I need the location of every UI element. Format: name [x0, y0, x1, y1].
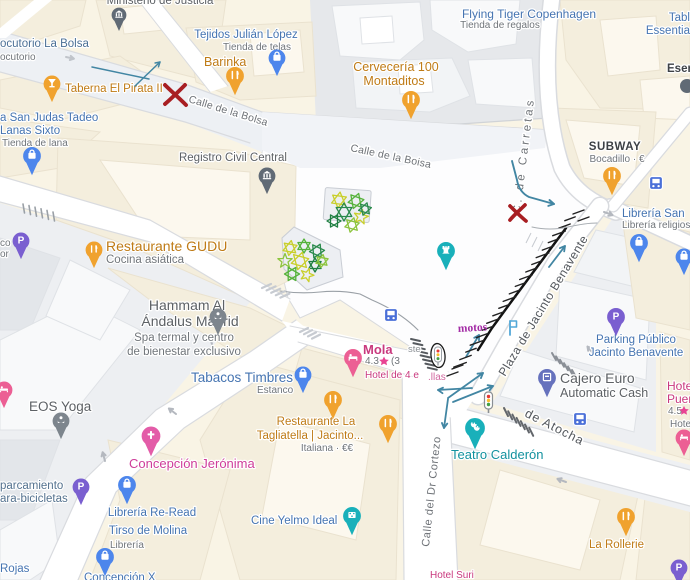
svg-text:Tabl: Tabl: [669, 12, 690, 24]
svg-text:Tejidos Julián López: Tejidos Julián López: [194, 29, 298, 41]
svg-text:Flying Tiger Copenhagen: Flying Tiger Copenhagen: [462, 7, 596, 21]
svg-text:Mola: Mola: [363, 342, 393, 357]
svg-text:P: P: [78, 482, 85, 493]
svg-text:Cervecería 100: Cervecería 100: [353, 60, 439, 74]
svg-text:Montaditos: Montaditos: [363, 74, 424, 88]
svg-text:(3: (3: [391, 356, 400, 367]
svg-text:Jacinto Benavente: Jacinto Benavente: [589, 347, 684, 359]
svg-text:Librería: Librería: [110, 540, 144, 551]
svg-text:de bienestar exclusivo: de bienestar exclusivo: [127, 346, 241, 358]
svg-text:Cine Yelmo Ideal: Cine Yelmo Ideal: [251, 515, 337, 527]
svg-text:or: or: [0, 249, 10, 260]
svg-text:4.3: 4.3: [365, 356, 379, 367]
svg-text:La Rollerie: La Rollerie: [589, 539, 644, 551]
svg-text:Estanco: Estanco: [257, 385, 294, 396]
svg-text:Concepción X: Concepción X: [84, 572, 156, 580]
svg-text:P: P: [18, 236, 25, 247]
svg-text:Hotel: Hotel: [667, 379, 690, 393]
svg-text:Tienda de lana: Tienda de lana: [2, 138, 68, 149]
svg-text:ocutorio La Bolsa: ocutorio La Bolsa: [0, 38, 89, 50]
svg-text:Bocadillo · €: Bocadillo · €: [589, 154, 644, 165]
svg-text:4.5: 4.5: [668, 406, 682, 417]
svg-text:Hotel: Hotel: [670, 419, 690, 430]
svg-text:co: co: [0, 238, 11, 249]
svg-text:Tabacos Timbres: Tabacos Timbres: [191, 370, 293, 385]
svg-text:motos: motos: [458, 321, 488, 335]
svg-text:Concepción Jerónima: Concepción Jerónima: [129, 456, 256, 471]
svg-text:Essentia: Essentia: [646, 25, 690, 37]
svg-text:Ministerio de Justicia: Ministerio de Justicia: [107, 0, 214, 7]
svg-text:Lanas Sixto: Lanas Sixto: [0, 125, 60, 137]
svg-text:Hotel Suri: Hotel Suri: [430, 570, 474, 580]
svg-text:P: P: [613, 312, 620, 323]
svg-text:Tagliatella | Jacinto...: Tagliatella | Jacinto...: [257, 430, 364, 442]
svg-text:Cocina asiática: Cocina asiática: [106, 254, 185, 266]
svg-text:Tienda de regalos: Tienda de regalos: [460, 20, 540, 31]
svg-text:Parking Público: Parking Público: [596, 334, 676, 346]
svg-text:Automatic Cash: Automatic Cash: [560, 386, 648, 400]
svg-text:Italiana · €€: Italiana · €€: [301, 443, 354, 454]
svg-text:Librería San: Librería San: [622, 208, 685, 220]
svg-text:a San Judas Tadeo: a San Judas Tadeo: [0, 112, 98, 124]
svg-text:Restaurante La: Restaurante La: [277, 416, 356, 428]
svg-text:Barinka: Barinka: [204, 55, 246, 69]
svg-text:ste: ste: [408, 344, 421, 355]
svg-text:P: P: [676, 563, 683, 574]
svg-text:.llas: .llas: [428, 372, 446, 383]
svg-text:Puer: Puer: [667, 392, 690, 406]
svg-text:ocutorio: ocutorio: [0, 52, 36, 63]
svg-text:Librería religiosa: Librería religiosa: [622, 220, 690, 231]
svg-text:Taberna El Pirata II: Taberna El Pirata II: [65, 83, 163, 95]
svg-text:SUBWAY: SUBWAY: [589, 141, 641, 153]
svg-text:Hotel de 4 e: Hotel de 4 e: [365, 370, 419, 381]
svg-text:Restaurante GUDU: Restaurante GUDU: [106, 238, 227, 254]
svg-text:Cajero Euro: Cajero Euro: [560, 370, 635, 386]
svg-text:EOS Yoga: EOS Yoga: [29, 399, 92, 414]
svg-text:Registro Civil Central: Registro Civil Central: [179, 152, 287, 164]
svg-text:Teatro Calderón: Teatro Calderón: [451, 447, 544, 462]
svg-text:parcamiento: parcamiento: [0, 480, 63, 492]
svg-text:Tirso de Molina: Tirso de Molina: [109, 525, 188, 537]
svg-text:Esen: Esen: [667, 63, 690, 75]
svg-text:Rojas: Rojas: [0, 563, 30, 575]
svg-text:Librería Re-Read: Librería Re-Read: [108, 507, 196, 519]
svg-text:ara-bicicletas: ara-bicicletas: [0, 493, 68, 505]
svg-text:Spa termal y centro: Spa termal y centro: [134, 332, 234, 344]
